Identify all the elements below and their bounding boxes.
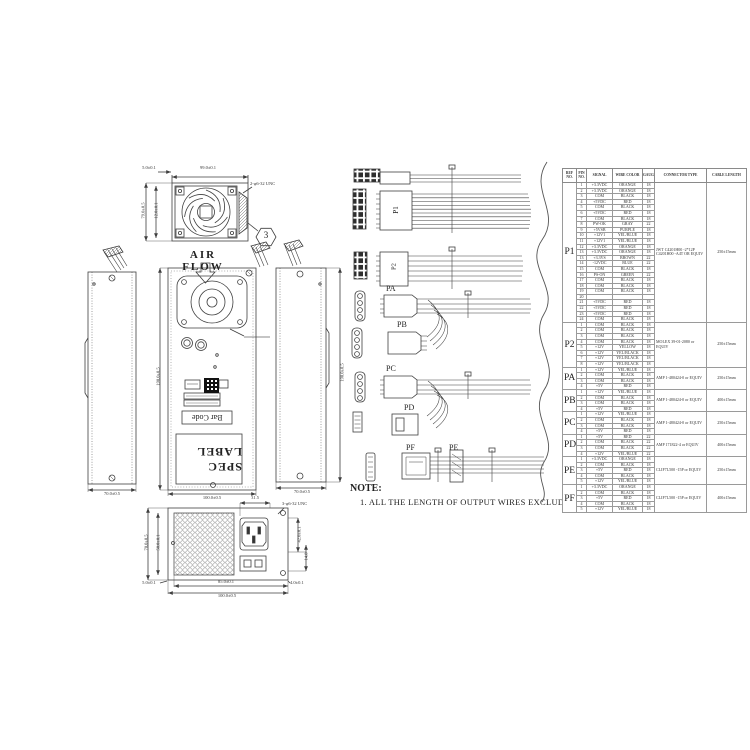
- table-header-cell: SIGNAL: [587, 169, 613, 183]
- connector-type-cell: CLIF7L500 -15P or EQUIV: [655, 457, 707, 485]
- ref-cell-PD: PD: [563, 434, 577, 456]
- bar-code-text: Bar Code: [192, 413, 222, 422]
- ref-cell-P2: P2: [563, 322, 577, 367]
- cable-length-cell: 250±15mm: [707, 322, 747, 367]
- fan-dim-left-inner: 12.0±0.1: [155, 193, 160, 227]
- connector-type-cell: AMP 1-480424-0 or EQUIV: [655, 367, 707, 389]
- harness-label-pe: PE: [449, 443, 458, 452]
- side-view-left: [85, 246, 136, 492]
- spec-label-box: SPEC LABEL: [176, 434, 242, 484]
- front-dim-width: 100.0±0.5: [182, 496, 242, 501]
- ref-cell-PC: PC: [563, 412, 577, 434]
- side-right-dim-height: 190.0±0.5: [341, 349, 346, 395]
- cable-length-cell: 250±15mm: [707, 457, 747, 485]
- side-left-dim: 70.0±0.5: [88, 492, 136, 497]
- rear-dim-right-2: 14.8: [305, 546, 310, 566]
- connector-type-cell: JWT C4201H00 -2*12P C4201H00 -A4T OR EQU…: [655, 183, 707, 323]
- rear-dim-bottom-inner: 85.0±0.1: [196, 580, 256, 585]
- side-view-right: [276, 240, 340, 490]
- fan-dim-top-left: 5.0±0.1: [138, 166, 160, 171]
- ref-cell-PE: PE: [563, 457, 577, 485]
- table-header-cell: GAUGE: [643, 169, 655, 183]
- ref-cell-PA: PA: [563, 367, 577, 389]
- harness-p2: [354, 247, 523, 289]
- table-header-cell: REF NO.: [563, 169, 577, 183]
- rear-dim-left-inner: 50.0±0.1: [157, 523, 162, 561]
- ref-cell-PF: PF: [563, 485, 577, 513]
- cable-length-cell: 250±15mm: [707, 367, 747, 389]
- rear-dim-corner-left: 5.0±0.1: [138, 581, 160, 586]
- harness-label-pa: PA: [386, 284, 396, 293]
- ref-cell-P1: P1: [563, 183, 577, 323]
- table-header-cell: CABLE LENGTH: [707, 169, 747, 183]
- cable-break-wave: [537, 162, 550, 502]
- output-socket-icon: [240, 556, 266, 571]
- psu-mechanical-drawing: 99.0±0.1 5.0±0.1 79.0±0.5 12.0±0.1 2-φ6-…: [0, 0, 750, 750]
- pin-table-header: REF NO.PIN NO.SIGNALWIRE COLORGAUGECONNE…: [563, 169, 747, 183]
- qr-code-icon: [204, 378, 219, 393]
- front-dim-height: 190.0±0.5: [157, 353, 162, 399]
- side-right-dim-width: 70.0±0.5: [277, 490, 327, 495]
- connector-type-cell: AMP 1-480424-0 or EQUIV: [655, 389, 707, 411]
- rear-dim-right-1: 42.0±0.1: [298, 516, 303, 552]
- pin-cell: 5: [577, 507, 587, 513]
- bar-code-box: Bar Code: [182, 411, 232, 424]
- cable-length-cell: 250±15mm: [707, 412, 747, 434]
- cable-length-cell: 400±15mm: [707, 485, 747, 513]
- pin-cell: YEL/BLUE: [613, 507, 643, 513]
- rear-dim-bottom-outer: 100.0±0.5: [192, 594, 262, 599]
- fan-guard-icon: [177, 276, 247, 328]
- ac-inlet-icon: [240, 518, 268, 550]
- rear-dim-corner-right: 4.0±0.1: [290, 581, 312, 586]
- connector-type-cell: AMP 1-480424-0 or EQUIV: [655, 412, 707, 434]
- harness-label-pc: PC: [386, 364, 396, 373]
- pin-cell: YEL/BLACK: [613, 350, 643, 356]
- harness-label-pf: PF: [406, 443, 415, 452]
- harness-pa-pb: [352, 291, 531, 358]
- balloon-number: 3: [256, 230, 276, 240]
- cable-length-cell: 400±15mm: [707, 389, 747, 411]
- ref-cell-PB: PB: [563, 389, 577, 411]
- note-title: NOTE:: [350, 483, 382, 494]
- connector-type-cell: AMP 171822-4 or EQUIV: [655, 434, 707, 456]
- table-header-cell: WIRE COLOR: [613, 169, 643, 183]
- air-flow-label: AIR FLOW: [168, 249, 238, 273]
- harness-pc-pd: [353, 372, 531, 435]
- fan-callout: 2-φ6-32 UNC: [250, 182, 290, 187]
- harness-p1: [353, 165, 531, 233]
- rear-dim-left-outer: 70.0±0.5: [145, 521, 150, 563]
- fan-dim-top: 99.0±0.1: [178, 166, 238, 171]
- spec-label-text: SPEC LABEL: [176, 444, 242, 474]
- table-header-cell: CONNECTOR TYPE: [655, 169, 707, 183]
- harness-label-p2: P2: [391, 252, 398, 282]
- connector-type-cell: MOLEX 39-01-2080 or EQUIV: [655, 322, 707, 367]
- cable-length-cell: 250±15mm: [707, 183, 747, 323]
- pin-cell: +12V: [587, 507, 613, 513]
- harness-pf-pe: [366, 448, 544, 482]
- fan-dim-left-outer: 79.0±0.5: [142, 190, 147, 230]
- rear-callout: 3-φ6-32 UNC: [282, 502, 326, 507]
- cable-length-cell: 400±15mm: [707, 434, 747, 456]
- pin-table: REF NO.PIN NO.SIGNALWIRE COLORGAUGECONNE…: [562, 168, 747, 513]
- rear-dim-top: 31.5: [240, 496, 270, 501]
- harness-label-pb: PB: [397, 320, 407, 329]
- fan-icon: [181, 187, 232, 238]
- harness-label-pd: PD: [404, 403, 414, 412]
- harness-label-p1: P1: [392, 195, 400, 225]
- pin-cell: YEL/BLACK: [613, 356, 643, 362]
- pin-cell: 18: [643, 507, 655, 513]
- safety-logo-icons: [182, 338, 207, 351]
- pin-cell: YEL/BLACK: [613, 362, 643, 368]
- connector-type-cell: CLIF7L500 -15P or EQUIV: [655, 485, 707, 513]
- table-header-cell: PIN NO.: [577, 169, 587, 183]
